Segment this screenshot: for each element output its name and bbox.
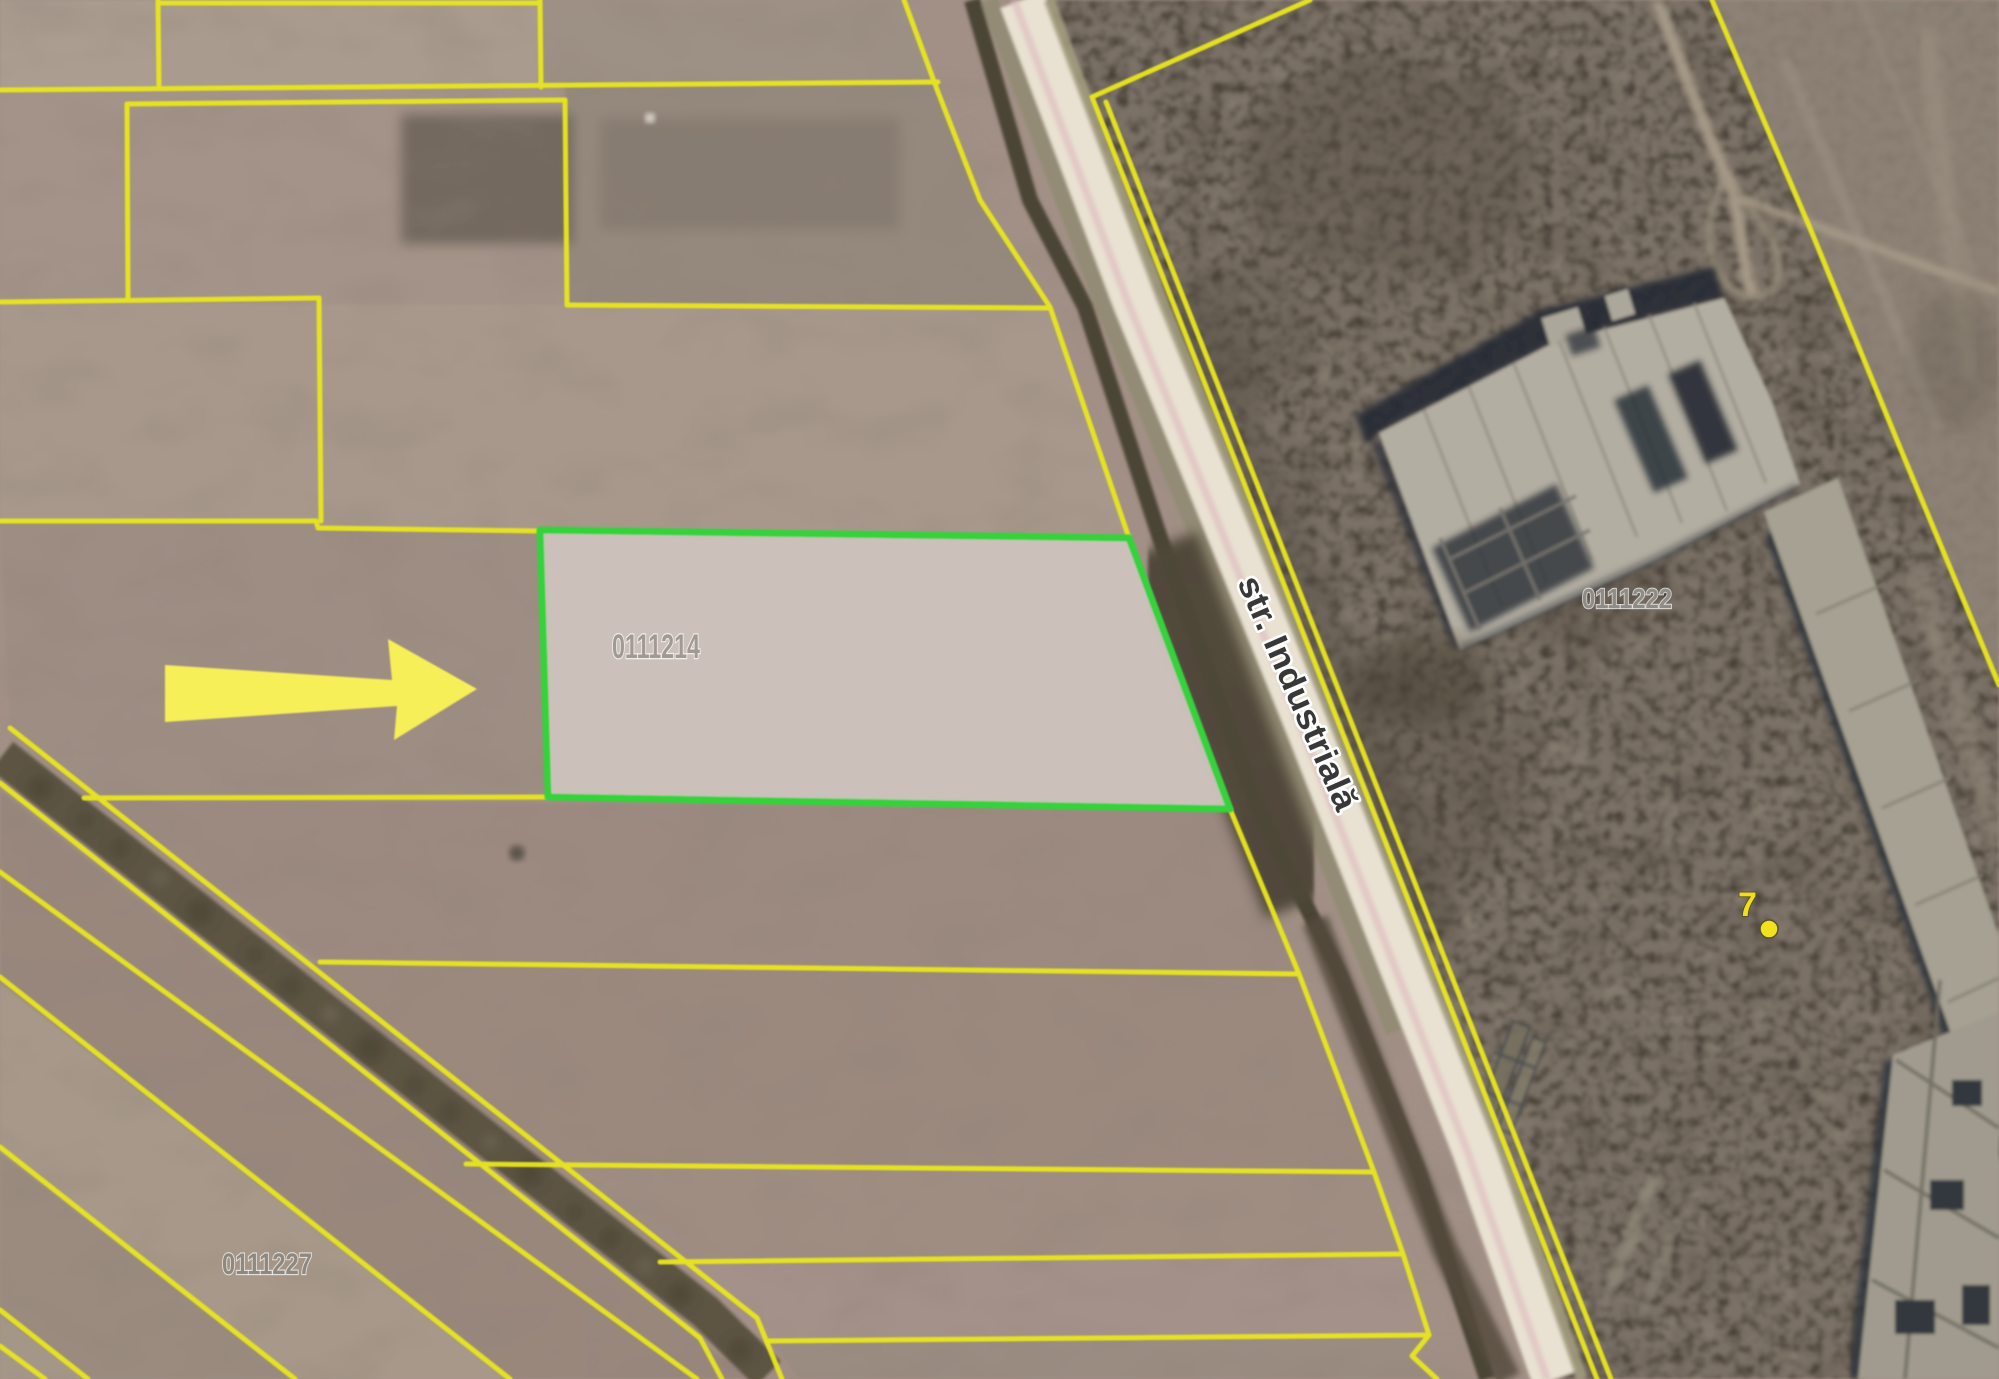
- svg-text:0111222: 0111222: [1582, 583, 1672, 614]
- svg-text:0111214: 0111214: [612, 628, 700, 666]
- svg-text:0111227: 0111227: [222, 1248, 312, 1281]
- svg-text:7: 7: [1738, 886, 1757, 924]
